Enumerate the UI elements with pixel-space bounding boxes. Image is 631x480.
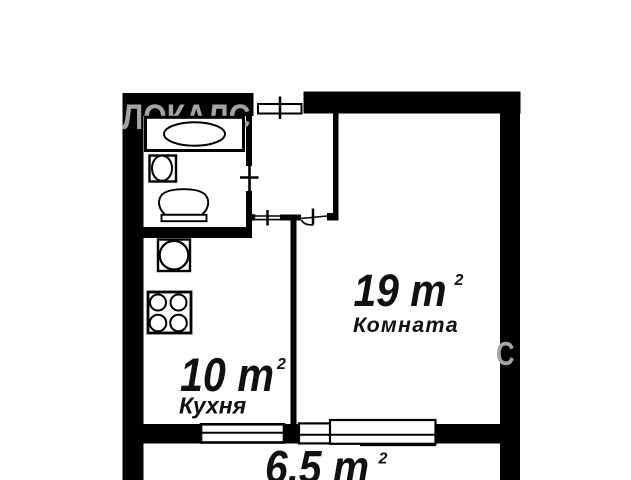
svg-text:2: 2 [454,272,464,289]
svg-text:Кухня: Кухня [179,393,247,419]
svg-text:С: С [496,335,515,372]
svg-text:Комната: Комната [353,313,459,337]
svg-text:2: 2 [276,356,286,373]
svg-text:6.5 m: 6.5 m [265,441,369,480]
svg-text:19 m: 19 m [354,265,447,316]
svg-text:2: 2 [378,451,388,468]
